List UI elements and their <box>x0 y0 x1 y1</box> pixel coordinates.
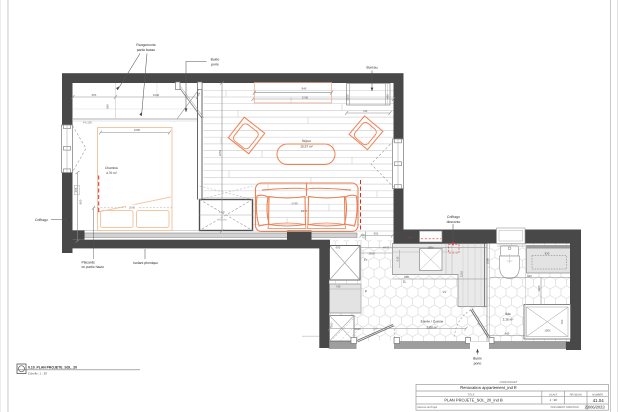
svg-text:porte: porte <box>474 362 482 366</box>
svg-text:34: 34 <box>197 92 201 96</box>
svg-text:740: 740 <box>336 284 341 288</box>
svg-text:Séjour: Séjour <box>302 139 312 143</box>
svg-text:TITLE: TITLE <box>468 393 475 396</box>
svg-text:1004: 1004 <box>427 246 434 250</box>
svg-text:SCALE: SCALE <box>549 393 558 396</box>
svg-text:41.04: 41.04 <box>593 398 605 403</box>
svg-text:PLAN PROJETE_SOL_20_ind B: PLAN PROJETE_SOL_20_ind B <box>444 398 503 403</box>
svg-text:940: 940 <box>505 332 510 336</box>
svg-text:REVISION: REVISION <box>570 393 582 396</box>
svg-text:1650: 1650 <box>368 252 375 256</box>
svg-text:745: 745 <box>363 109 368 113</box>
svg-text:1870: 1870 <box>301 209 308 213</box>
svg-text:600: 600 <box>330 322 334 327</box>
svg-text:Sde: Sde <box>505 312 511 316</box>
svg-text:2.16 m²: 2.16 m² <box>503 318 514 322</box>
svg-text:Adresse du Projet: Adresse du Projet <box>417 406 437 409</box>
svg-text:Chambre: Chambre <box>105 166 118 170</box>
svg-text:porte: porte <box>211 63 219 67</box>
svg-text:605: 605 <box>374 232 379 236</box>
svg-text:Meuble: Meuble <box>219 219 228 222</box>
svg-text:Placards: Placards <box>82 260 95 264</box>
svg-text:Isolant phonique: Isolant phonique <box>133 261 158 265</box>
svg-text:2040: 2040 <box>129 206 136 210</box>
svg-text:610: 610 <box>396 256 400 261</box>
svg-text:830: 830 <box>545 252 550 256</box>
svg-text:23/06/2023: 23/06/2023 <box>585 405 606 410</box>
svg-text:3790: 3790 <box>302 95 309 99</box>
svg-text:Butée: Butée <box>211 58 220 62</box>
svg-text:4670: 4670 <box>383 246 390 250</box>
svg-text:5.80 m²: 5.80 m² <box>427 326 438 330</box>
svg-text:Renovation appartement_ind E: Renovation appartement_ind E <box>460 385 517 390</box>
svg-text:450: 450 <box>386 94 390 99</box>
svg-text:partie basse: partie basse <box>137 48 156 52</box>
svg-text:4.70 m²: 4.70 m² <box>106 171 117 175</box>
svg-text:en partie haute: en partie haute <box>82 265 105 269</box>
svg-text:LL: LL <box>403 280 407 284</box>
svg-text:1 : 20: 1 : 20 <box>549 398 557 402</box>
svg-text:860: 860 <box>79 199 83 204</box>
svg-text:0.10_PLAN PROJETE_SOL_20: 0.10_PLAN PROJETE_SOL_20 <box>28 366 77 370</box>
svg-text:940: 940 <box>527 274 532 278</box>
svg-text:Entrée / Cuisine: Entrée / Cuisine <box>421 320 444 324</box>
svg-text:600: 600 <box>336 246 341 250</box>
svg-text:1210: 1210 <box>460 270 464 277</box>
svg-text:1890: 1890 <box>486 257 490 264</box>
svg-text:Bureau: Bureau <box>367 66 378 70</box>
svg-text:2790: 2790 <box>291 202 298 206</box>
svg-text:Butée: Butée <box>473 357 482 361</box>
svg-text:275: 275 <box>362 233 366 238</box>
svg-text:2653: 2653 <box>218 149 222 156</box>
svg-text:CODE PROJET: CODE PROJET <box>500 381 518 384</box>
svg-text:700: 700 <box>560 319 564 324</box>
svg-text:Coffrage: Coffrage <box>35 218 48 222</box>
svg-text:1600: 1600 <box>134 128 141 132</box>
svg-text:15.57 m²: 15.57 m² <box>300 145 313 149</box>
svg-text:DOCUMENT CREATION: DOCUMENT CREATION <box>551 406 579 409</box>
svg-text:P: P <box>365 290 367 294</box>
svg-text:2100: 2100 <box>345 94 349 101</box>
svg-text:Coffrage: Coffrage <box>447 215 460 219</box>
svg-text:3040: 3040 <box>354 327 361 331</box>
svg-text:1005: 1005 <box>544 329 551 333</box>
svg-text:Rangements: Rangements <box>136 43 156 47</box>
svg-text:NUMBER: NUMBER <box>592 393 603 396</box>
svg-text:860: 860 <box>106 104 110 109</box>
svg-text:Échelle: 1 : 20: Échelle: 1 : 20 <box>28 372 47 376</box>
svg-text:descente: descente <box>447 220 461 224</box>
svg-text:1365: 1365 <box>537 285 541 292</box>
svg-text:605: 605 <box>92 93 97 97</box>
svg-text:1640: 1640 <box>153 93 160 97</box>
svg-text:846: 846 <box>302 86 307 90</box>
